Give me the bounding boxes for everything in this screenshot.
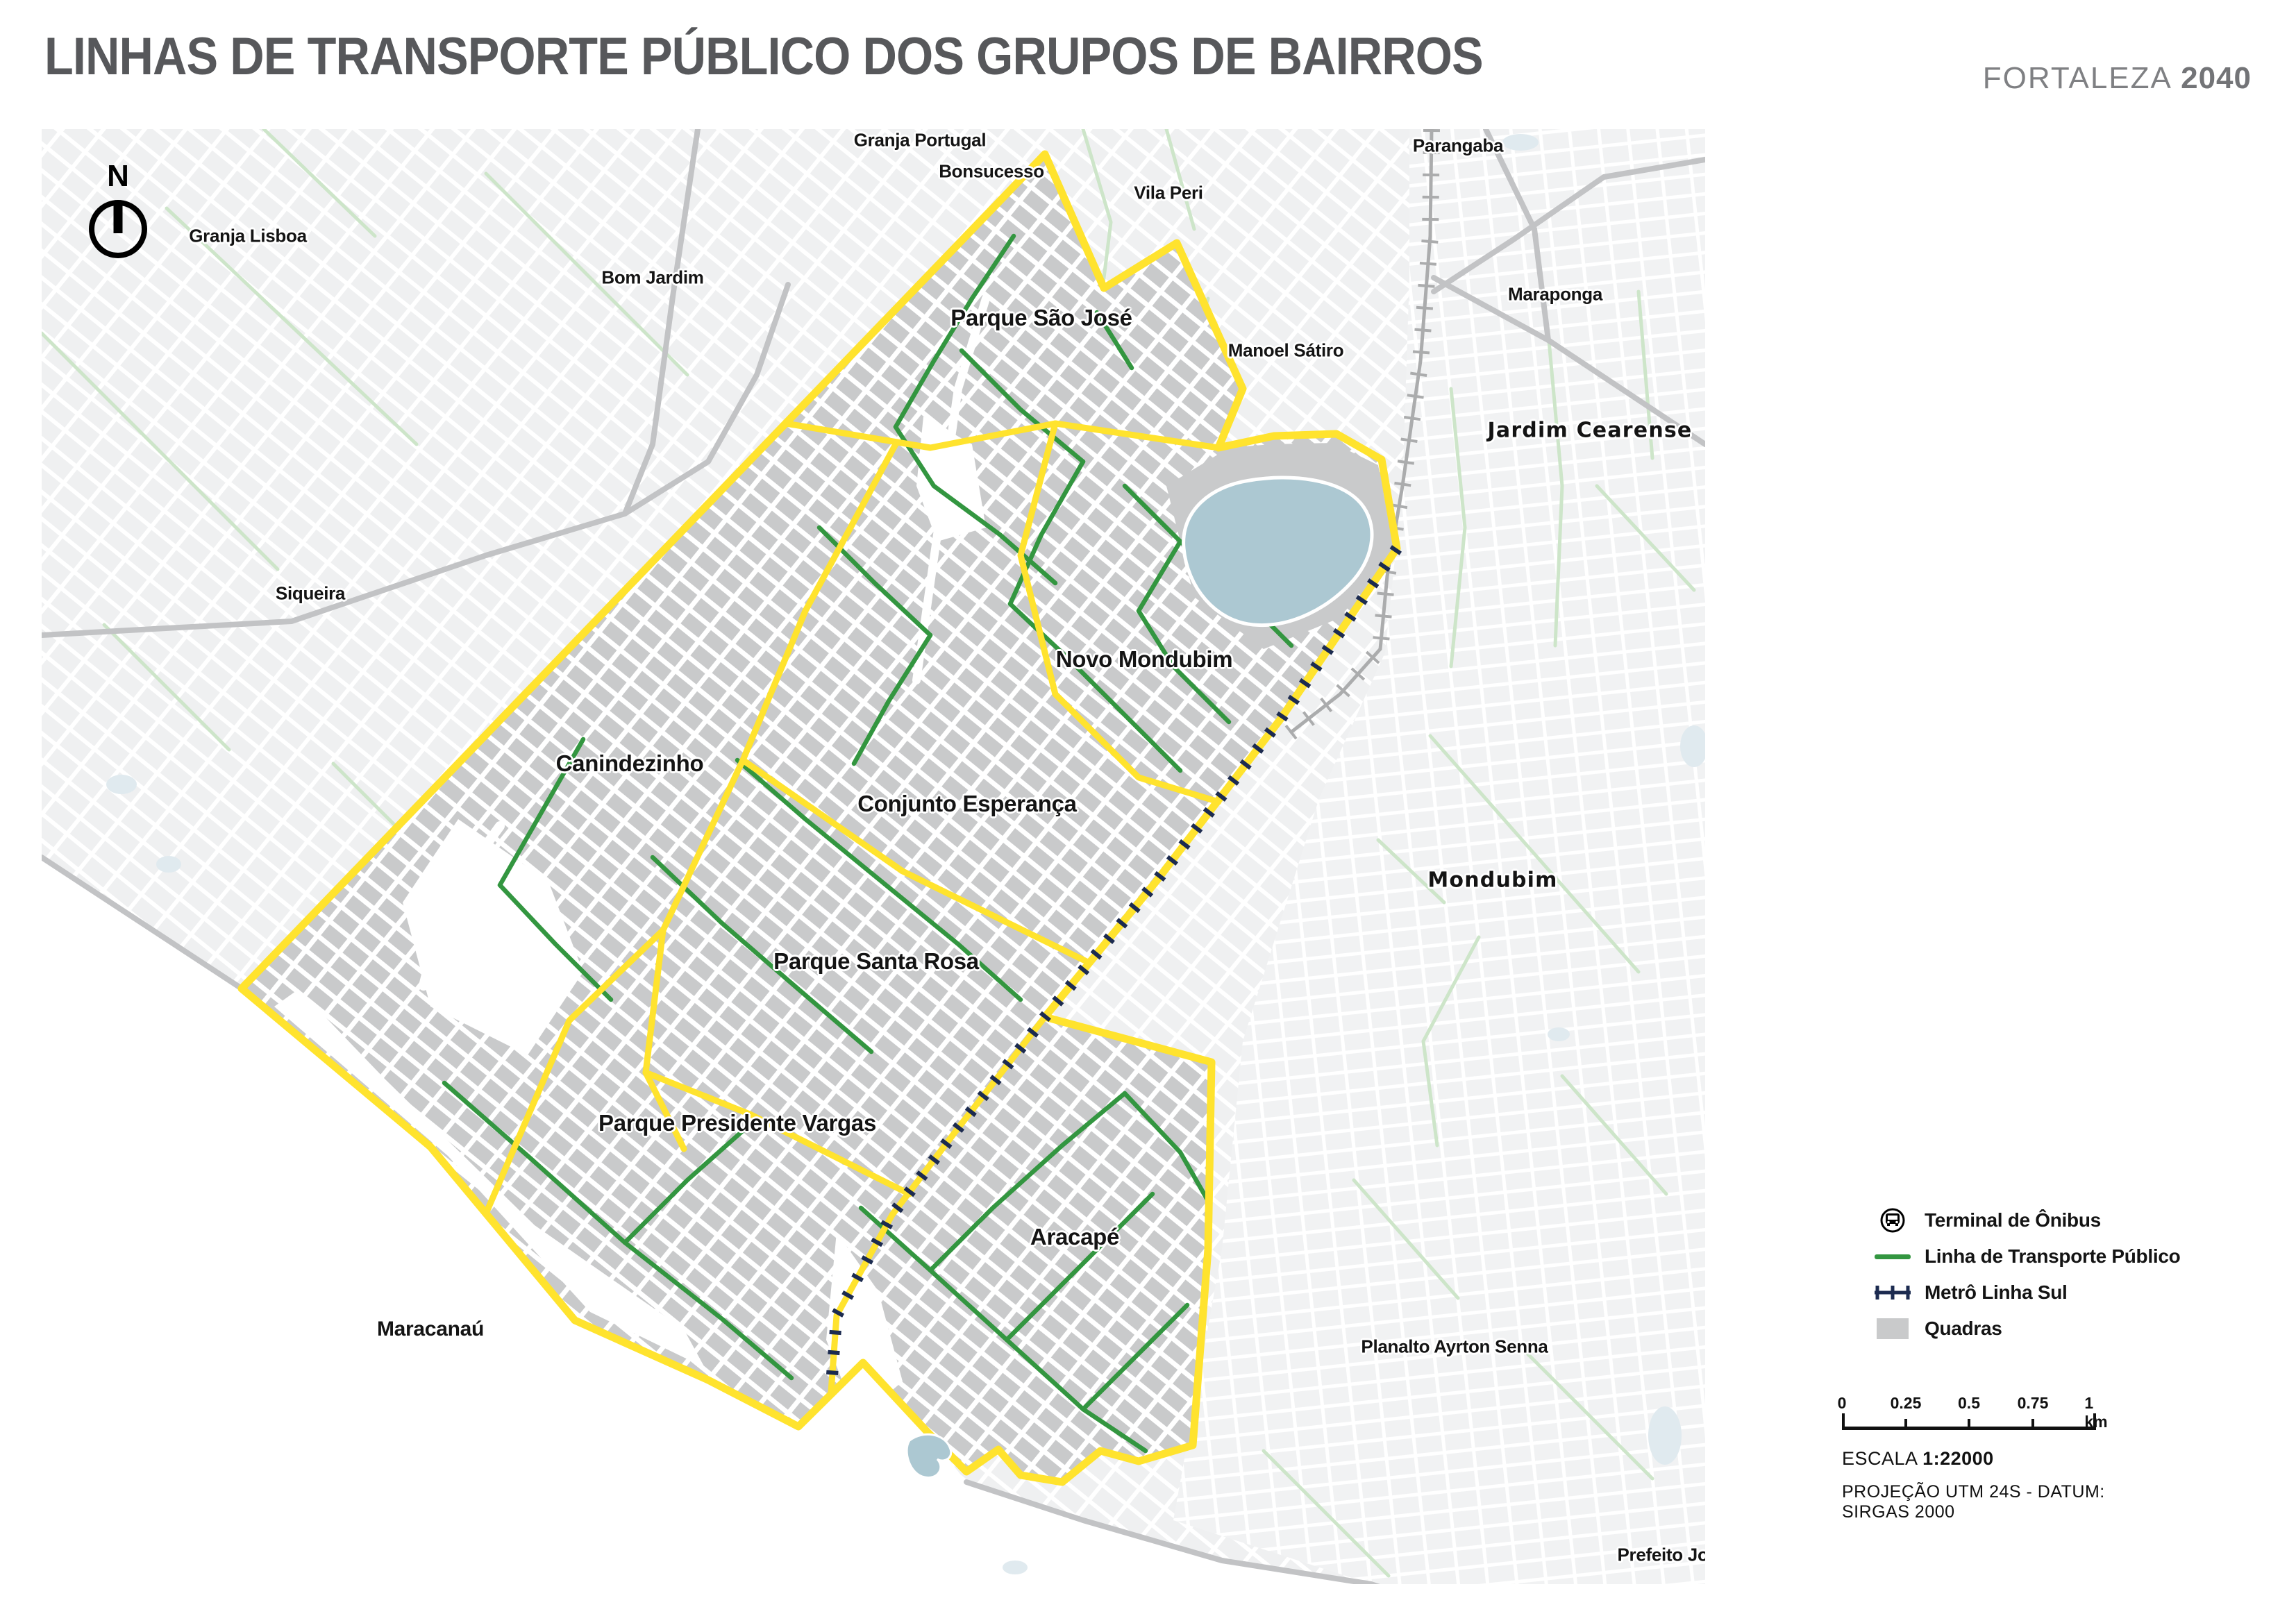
map-canvas: N Granja PortugalBonsucessoVila PeriPara…	[42, 129, 1705, 1584]
bus-terminal-icon	[1872, 1206, 1913, 1234]
legend-row-metro: Metrô Linha Sul	[1872, 1275, 2180, 1311]
page-title: LINHAS DE TRANSPORTE PÚBLICO DOS GRUPOS …	[44, 26, 1483, 87]
brand-name: FORTALEZA	[1983, 61, 2172, 95]
legend-row-terminal: Terminal de Ônibus	[1872, 1202, 2180, 1238]
legend-label-metro: Metrô Linha Sul	[1925, 1281, 2068, 1304]
scale-tick-0: 0	[1838, 1394, 1847, 1413]
map-drawing: N	[42, 129, 1705, 1584]
quadras-swatch	[1872, 1318, 1913, 1339]
brand-logo: FORTALEZA 2040	[1983, 61, 2252, 96]
legend-label-quadras: Quadras	[1925, 1318, 2002, 1340]
legend: Terminal de Ônibus Linha de Transporte P…	[1872, 1202, 2180, 1347]
scale-bar	[1842, 1413, 2096, 1430]
legend-row-quadras: Quadras	[1872, 1311, 2180, 1347]
north-label: N	[107, 159, 129, 193]
poster-page: LINHAS DE TRANSPORTE PÚBLICO DOS GRUPOS …	[0, 0, 2296, 1623]
legend-row-linha: Linha de Transporte Público	[1872, 1238, 2180, 1275]
scale-tick-labels: 0 0.25 0.5 0.75 1 km	[1842, 1394, 2096, 1413]
metro-line-swatch	[1872, 1284, 1913, 1302]
scale-box: 0 0.25 0.5 0.75 1 km ESCALA 1:22000 PROJ…	[1842, 1394, 2161, 1522]
legend-label-terminal: Terminal de Ônibus	[1925, 1209, 2101, 1231]
scale-tick-3: 0.75	[2018, 1394, 2049, 1413]
transit-line-swatch	[1872, 1254, 1913, 1259]
legend-label-linha: Linha de Transporte Público	[1925, 1245, 2180, 1268]
brand-year: 2040	[2181, 61, 2252, 95]
scale-tick-1: 0.25	[1891, 1394, 1922, 1413]
projecao-text: PROJEÇÃO UTM 24S - DATUM: SIRGAS 2000	[1842, 1482, 2161, 1522]
scale-tick-2: 0.5	[1958, 1394, 1980, 1413]
escala-text: ESCALA 1:22000	[1842, 1448, 2161, 1470]
